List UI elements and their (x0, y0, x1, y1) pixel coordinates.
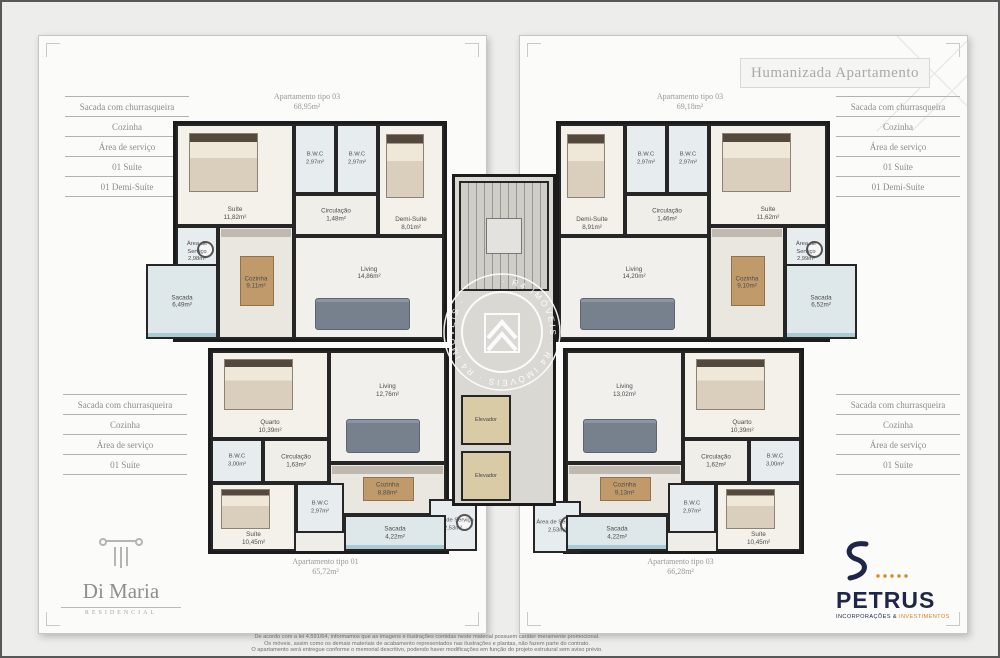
petrus-subtitle: INCORPORAÇÕES & INVESTIMENTOS (836, 614, 952, 620)
room: Living13,02m² (566, 351, 683, 463)
plan-caption: Apartamento tipo 03 69,18m² (556, 92, 824, 111)
room: Sacada4,22m² (344, 515, 446, 551)
sofa-graphic (346, 419, 420, 453)
disclaimer: De acordo com a lei 4.591/64, informamos… (42, 634, 812, 654)
plan-caption-title: Apartamento tipo 03 (173, 92, 441, 102)
corner-mark (465, 43, 479, 57)
room-label: Sacada4,22m² (347, 526, 443, 541)
floorplan-bottom-left: Quarto10,39m²Living12,76m²B.W.C3,00m²Cir… (208, 348, 449, 554)
bed-graphic (567, 134, 605, 199)
bed-graphic (696, 359, 764, 410)
di-maria-subtitle: RESIDENCIAL (61, 607, 181, 616)
room: Sacada6,49m² (146, 264, 218, 339)
feature-item: Sacada com churrasqueira (836, 395, 960, 415)
room-label: B.W.C2,97m² (299, 501, 341, 516)
bed-graphic (386, 134, 424, 199)
plan-caption-title: Apartamento tipo 03 (556, 92, 824, 102)
room-label: B.W.C2,97m² (297, 152, 333, 167)
room-label: Demi-Suíte8,01m² (381, 216, 441, 231)
petrus-subtitle-right: INVESTIMENTOS (899, 614, 950, 620)
feature-item: 01 Demi-Suíte (836, 177, 960, 197)
feature-item: 01 Suíte (65, 157, 189, 177)
feature-list-bottom-left: Sacada com churrasqueiraCozinhaÁrea de s… (63, 394, 187, 475)
feature-item: Cozinha (836, 415, 960, 435)
petrus-logo: PETRUS INCORPORAÇÕES & INVESTIMENTOS (836, 539, 952, 620)
room-label: Suíte11,62m² (712, 206, 824, 221)
feature-item: Área de serviço (65, 137, 189, 157)
room: Quarto10,39m² (211, 351, 329, 439)
bed-graphic (189, 133, 257, 192)
plan-caption-area: 68,95m² (173, 102, 441, 112)
room-label: Suíte10,45m² (719, 531, 798, 546)
feature-item: Sacada com churrasqueira (836, 97, 960, 117)
feature-list-bottom-right: Sacada com churrasqueiraCozinhaÁrea de s… (836, 394, 960, 475)
feature-list-top-right: Sacada com churrasqueiraCozinhaÁrea de s… (836, 96, 960, 197)
room-label: B.W.C3,00m² (214, 454, 260, 469)
room: Circulação1,46m² (625, 194, 709, 236)
petrus-subtitle-left: INCORPORAÇÕES & (836, 614, 897, 620)
room: B.W.C3,00m² (749, 439, 801, 483)
room: B.W.C3,00m² (211, 439, 263, 483)
di-maria-name: Di Maria (61, 579, 181, 604)
room-label: Living13,02m² (569, 383, 680, 398)
sheet-right: Humanizada Apartamento Sacada com churra… (519, 35, 968, 634)
floorplan-top-right: Demi-Suíte8,91m²B.W.C2,97m²B.W.C2,97m²Su… (556, 121, 830, 342)
room-label: Living14,86m² (297, 266, 441, 281)
room: B.W.C2,97m² (294, 124, 336, 194)
plan-caption: Apartamento tipo 03 68,95m² (173, 92, 441, 111)
elevator-2: Elevador (461, 451, 511, 501)
room-label: B.W.C2,97m² (628, 152, 664, 167)
petrus-name: PETRUS (836, 588, 952, 612)
feature-item: Cozinha (63, 415, 187, 435)
page-title: Humanizada Apartamento (740, 58, 930, 88)
elevator-label: Elevador (475, 417, 497, 423)
room-label: Área de Serviço2,98m² (179, 241, 215, 264)
bed-graphic (726, 489, 775, 528)
di-maria-logo: Di Maria RESIDENCIAL (61, 534, 181, 616)
room: Circulação1,48m² (294, 194, 378, 236)
room-label: Circulação1,46m² (628, 208, 706, 223)
corner-mark (46, 43, 60, 57)
room: B.W.C2,97m² (667, 124, 709, 194)
room: Circulação1,63m² (263, 439, 329, 483)
room: Circulação1,62m² (683, 439, 749, 483)
plan-caption-title: Apartamento tipo 03 (563, 557, 798, 567)
room: B.W.C2,97m² (336, 124, 378, 194)
staircase (459, 181, 549, 291)
sofa-graphic (580, 298, 675, 330)
room-label: Cozinha9,13m² (569, 482, 680, 497)
room-label: B.W.C2,97m² (670, 152, 706, 167)
feature-item: Sacada com churrasqueira (63, 395, 187, 415)
room: Sacada4,22m² (566, 515, 668, 551)
feature-item: 01 Suíte (836, 157, 960, 177)
room-label: Quarto10,39m² (214, 419, 326, 434)
floorplan-top-left: Suíte11,82m²B.W.C2,97m²B.W.C2,97m²Demi-S… (173, 121, 447, 342)
room: Demi-Suíte8,91m² (559, 124, 625, 236)
sofa-graphic (583, 419, 657, 453)
sheet-left: Sacada com churrasqueiraCozinhaÁrea de s… (38, 35, 487, 634)
plan-caption: Apartamento tipo 03 66,28m² (563, 557, 798, 576)
bed-graphic (722, 133, 790, 192)
plan-caption: Apartamento tipo 01 65,72m² (208, 557, 443, 576)
plan-caption-title: Apartamento tipo 01 (208, 557, 443, 567)
feature-item: 01 Suíte (836, 455, 960, 475)
room: Living12,76m² (329, 351, 446, 463)
corner-mark (46, 612, 60, 626)
room-label: B.W.C3,00m² (752, 454, 798, 469)
room: B.W.C2,97m² (625, 124, 667, 194)
room-label: Living14,20m² (562, 266, 706, 281)
petrus-mark-icon (836, 539, 916, 583)
floorplan-poster: Sacada com churrasqueiraCozinhaÁrea de s… (0, 0, 1000, 658)
room-label: Área de Serviço2,99m² (788, 241, 824, 264)
disclaimer-line: De acordo com a lei 4.591/64, informamos… (42, 634, 812, 641)
feature-item: Cozinha (65, 117, 189, 137)
floorplan-bottom-right: Living13,02m²Quarto10,39m²Circulação1,62… (563, 348, 804, 554)
disclaimer-line: O apartamento será entregue conforme o m… (42, 647, 812, 654)
room: Cozinha9,11m² (218, 226, 294, 339)
room-label: Demi-Suíte8,91m² (562, 216, 622, 231)
room-label: Living12,76m² (332, 383, 443, 398)
room-label: Suíte10,45m² (214, 531, 293, 546)
sofa-graphic (315, 298, 410, 330)
room-label: Circulação1,48m² (297, 208, 375, 223)
room-label: Sacada6,49m² (149, 294, 215, 309)
central-core: Elevador Elevador (452, 174, 556, 506)
corner-mark (465, 612, 479, 626)
room: Cozinha9,13m² (566, 463, 683, 515)
column-icon (95, 534, 147, 572)
plan-caption-area: 66,28m² (563, 567, 798, 577)
feature-list-top-left: Sacada com churrasqueiraCozinhaÁrea de s… (65, 96, 189, 197)
disclaimer-line: Os móveis, assim como os demais materiai… (42, 641, 812, 648)
room: Sacada6,52m² (785, 264, 857, 339)
room-label: B.W.C2,97m² (671, 501, 713, 516)
room: Living14,20m² (559, 236, 709, 339)
plan-caption-area: 65,72m² (208, 567, 443, 577)
room-label: Circulação1,63m² (266, 454, 326, 469)
room-label: Circulação1,62m² (686, 454, 746, 469)
room: Suíte11,82m² (176, 124, 294, 226)
room: Suíte11,62m² (709, 124, 827, 226)
feature-item: Área de serviço (63, 435, 187, 455)
elevator-1: Elevador (461, 395, 511, 445)
room-label: B.W.C2,97m² (339, 152, 375, 167)
room-label: Cozinha9,11m² (221, 275, 291, 290)
feature-item: Cozinha (836, 117, 960, 137)
room-label: Suíte11,82m² (179, 206, 291, 221)
room-label: Quarto10,39m² (686, 419, 798, 434)
room-label: Sacada6,52m² (788, 294, 854, 309)
room-label: Cozinha8,88m² (332, 482, 443, 497)
room: Cozinha9,10m² (709, 226, 785, 339)
feature-item: Sacada com churrasqueira (65, 97, 189, 117)
stair-landing (486, 218, 522, 254)
elevator-label: Elevador (475, 473, 497, 479)
corner-mark (527, 612, 541, 626)
room: Suíte10,45m² (716, 483, 801, 551)
feature-item: 01 Demi-Suíte (65, 177, 189, 197)
corner-mark (527, 43, 541, 57)
feature-item: Área de serviço (836, 435, 960, 455)
room: Quarto10,39m² (683, 351, 801, 439)
feature-item: Área de serviço (836, 137, 960, 157)
bed-graphic (224, 359, 292, 410)
bed-graphic (221, 489, 270, 528)
room-label: Sacada4,22m² (569, 526, 665, 541)
room: Suíte10,45m² (211, 483, 296, 551)
room-label: Cozinha9,10m² (712, 275, 782, 290)
plan-caption-area: 69,18m² (556, 102, 824, 112)
room: Living14,86m² (294, 236, 444, 339)
feature-item: 01 Suíte (63, 455, 187, 475)
room: Demi-Suíte8,01m² (378, 124, 444, 236)
